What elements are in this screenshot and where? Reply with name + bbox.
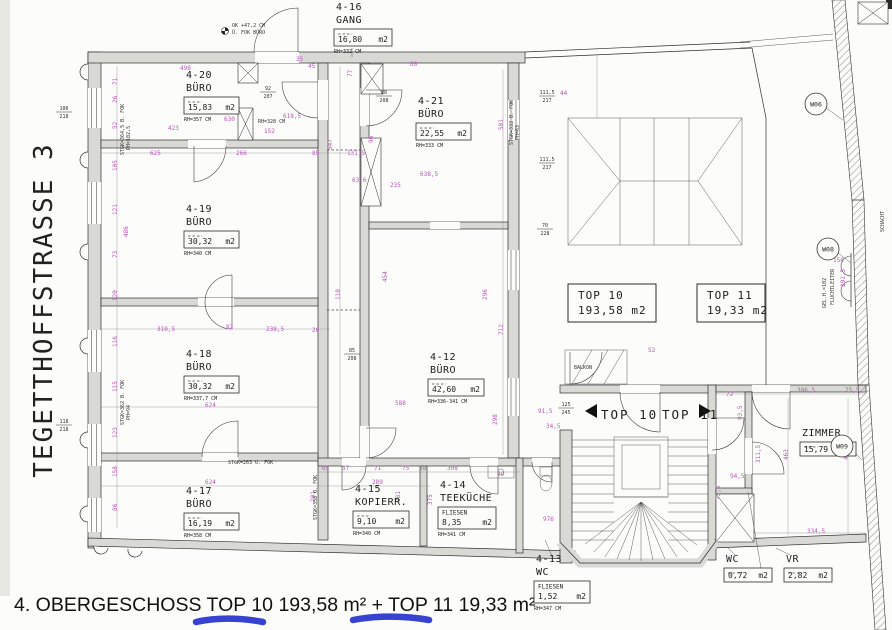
room-name: WC: [726, 554, 739, 565]
room-number: 4-17: [186, 486, 212, 497]
room-name: GANG: [336, 15, 362, 26]
annotation-note: FLUCHTLEITER: [830, 268, 836, 305]
dimension-label: 547: [327, 139, 334, 150]
dimension-label: 52: [112, 121, 119, 129]
room-height-note: RH=340 CM: [353, 531, 380, 537]
dimension-label: 96: [368, 135, 375, 143]
wall-tag: W06: [805, 93, 827, 115]
room-area-unit: m2: [482, 518, 492, 527]
dimension-label: 334,5: [807, 528, 825, 535]
dimension-label: 306,5: [797, 387, 815, 394]
annotation-note: STGK=263 U. FOK: [228, 460, 273, 466]
elevation-mark-icon: [222, 28, 229, 35]
room-area-unit: m2: [758, 571, 768, 580]
dimension-label: 152: [264, 128, 275, 135]
stair-label-top10: TOP 10: [601, 407, 658, 422]
dimension-label: 116: [112, 336, 119, 347]
wall-tag-text: W06: [810, 101, 822, 109]
room-height-note: RH=333 CM: [416, 143, 443, 149]
page-title: 4. OBERGESCHOSS TOP 10 193,58 m² + TOP 1…: [14, 594, 536, 616]
label-text: 70: [542, 223, 548, 229]
room-number: 4-19: [186, 204, 212, 215]
dimension-label: 630: [224, 116, 235, 123]
dimension-label: 712: [498, 324, 505, 335]
room-area-unit: m2: [225, 382, 235, 391]
room-area-unit: m2: [378, 35, 388, 44]
label-text: 208: [347, 356, 356, 362]
room-number: 4-12: [430, 352, 456, 363]
annotation-note: BALKON: [574, 365, 592, 371]
dimension-label: 82: [226, 324, 234, 331]
label-text: 208: [379, 98, 388, 104]
dimension-label: 486: [123, 226, 130, 237]
floor-plan-drawing: TOP 10 TOP 11 TEGETTHOFFSTRASSE 3 4. OBE…: [0, 0, 892, 630]
label-text: 217: [542, 165, 551, 171]
dimension-label: 235: [390, 182, 401, 189]
window-left-4: [88, 424, 101, 466]
dimension-label: 77: [347, 69, 354, 77]
label-text: 92: [265, 86, 271, 92]
street-label: TEGETTHOFFSTRASSE 3: [29, 142, 59, 477]
dimension-label: 73: [112, 250, 119, 258]
room-height-note: RH=341 CM: [438, 532, 465, 538]
dimension-label: 976: [543, 516, 554, 523]
annotation-note: OK +47,2 CM: [232, 23, 265, 29]
dimension-label: 34,5: [546, 423, 561, 430]
dimension-label: 624: [205, 479, 216, 486]
unit-area-box: TOP 1119,33 m2: [697, 284, 768, 322]
room-name: KOPIERR.: [355, 497, 407, 508]
dimension-label: 588: [395, 400, 406, 407]
label-text: 88: [381, 90, 387, 96]
room-name: TEEKÜCHE: [440, 491, 492, 504]
label-text: 125: [561, 402, 570, 408]
label-text: 218: [59, 427, 68, 433]
room-number: 4-18: [186, 349, 212, 360]
dimension-label: 85: [312, 150, 320, 157]
label-text: 218: [59, 114, 68, 120]
dimension-label: 311,5: [755, 445, 762, 463]
stair-label-top11: TOP 11: [662, 407, 719, 422]
room-area-unit: m2: [576, 592, 586, 601]
room-area-value: 16,19: [188, 519, 212, 528]
label-text: 207: [263, 94, 272, 100]
dimension-label: 65: [322, 465, 330, 472]
dimension-label: 131,5: [347, 150, 365, 157]
unit-box-area: 193,58 m2: [578, 304, 647, 317]
room-height-note: RH=358 CM: [184, 533, 211, 539]
dimension-label: 423: [168, 125, 179, 132]
dimension-label: 266: [236, 150, 247, 157]
room-area-value: 22,55: [420, 129, 444, 138]
dimension-label: 105: [112, 160, 119, 171]
annotation-note: PH=102,5: [126, 126, 132, 150]
wall-tag-text: W08: [822, 246, 834, 254]
dimension-label: 26: [112, 95, 119, 103]
room-name: BÜRO: [430, 363, 456, 376]
room-area-unit: m2: [457, 129, 467, 138]
label-text: 111,5: [539, 157, 554, 163]
dimension-label: 52: [648, 347, 656, 354]
dimension-label: 298: [492, 414, 499, 425]
unit-box-label: TOP 10: [578, 289, 624, 302]
room-area-value: 0,72: [728, 571, 747, 580]
room-number: 4-16: [336, 2, 362, 13]
dimension-label: 618,5: [283, 113, 301, 120]
annotation-note: STGK=358 O. FOK: [313, 475, 319, 520]
label-text: 228: [540, 231, 549, 237]
dimension-label: 60: [410, 61, 418, 68]
dimension-label: 296: [482, 289, 489, 300]
dimension-label: 625: [150, 150, 161, 157]
scanned-floor-plan-page: TOP 10 TOP 11 TEGETTHOFFSTRASSE 3 4. OBE…: [0, 0, 892, 630]
room-area-unit: m2: [818, 571, 828, 580]
room-name: WC: [536, 567, 549, 578]
label-text: 118: [59, 419, 68, 425]
dimension-label: 71: [112, 77, 119, 85]
room-area-unit: m2: [395, 517, 405, 526]
dimension-label: 123: [112, 427, 119, 438]
room-number: 4-21: [418, 96, 444, 107]
dimension-label: 581: [498, 119, 505, 130]
unit-area-box: TOP 10193,58 m2: [568, 284, 656, 322]
dimension-label: 91,5: [538, 408, 553, 415]
dimension-label: 63,6: [352, 177, 367, 184]
room-number: 4-15: [355, 484, 381, 495]
room-area-value: 1,52: [538, 592, 557, 601]
room-area-value: 15,79: [804, 445, 828, 454]
room-name: BÜRO: [186, 81, 212, 94]
room-area-value: 15,83: [188, 103, 212, 112]
room-area-unit: m2: [470, 385, 480, 394]
dimension-label: 72: [726, 391, 734, 398]
room-area-unit: m2: [225, 237, 235, 246]
window-left-2: [88, 182, 101, 224]
room-material: FLIESEN: [442, 510, 468, 517]
dimension-label: 94,5: [730, 473, 745, 480]
dimension-label: 624: [205, 402, 216, 409]
room-name: BÜRO: [418, 107, 444, 120]
annotation-note: GEL.H.=102: [822, 278, 828, 308]
dimension-label: 308: [447, 465, 458, 472]
dimension-label: 375: [427, 494, 434, 505]
dimension-label: 29: [497, 471, 505, 478]
room-area-value: 30,32: [188, 382, 212, 391]
label-text: 245: [561, 410, 570, 416]
annotation-note: PH=94: [126, 405, 132, 420]
label-text: 85: [349, 348, 355, 354]
unit-box-area: 19,33 m2: [707, 304, 768, 317]
scan-edge-shadow: [0, 0, 10, 596]
dimension-label: 75,5: [845, 387, 860, 394]
room-area-value: 8,35: [442, 518, 461, 527]
window-court-3: [508, 378, 519, 416]
dimension-label: 463: [783, 449, 790, 460]
dimension-label: 110: [335, 289, 342, 300]
dimension-label: 238,5: [266, 326, 284, 333]
blue-marker-underline-top10: [196, 619, 263, 622]
room-area-value: 16,80: [338, 35, 362, 44]
dimension-label: 120: [112, 290, 119, 301]
dimension-label: 71: [374, 465, 382, 472]
annotation-note: Ü. FOK BÜRO: [232, 29, 265, 36]
blue-marker-underline-top11: [353, 617, 429, 620]
room-name: VR: [786, 554, 800, 565]
dimension-label: 638,5: [420, 171, 438, 178]
annotation-note: RH=328 CM: [258, 119, 285, 125]
window-left-5: [88, 498, 101, 532]
dimension-label: 44: [560, 90, 568, 97]
room-area-unit: m2: [225, 103, 235, 112]
room-area-value: 42,60: [432, 385, 456, 394]
dimension-label: 45: [308, 63, 316, 70]
room-name: BÜRO: [186, 360, 212, 373]
unit-box-label: TOP 11: [707, 289, 753, 302]
room-name: BÜRO: [186, 497, 212, 510]
wall-tag: W08: [817, 238, 839, 260]
dimension-label: 86: [112, 503, 119, 511]
room-height-note: RH=337,7 CM: [184, 396, 217, 402]
room-height-note: RH=357 CM: [184, 117, 211, 123]
room-area-value: 2,82: [788, 571, 807, 580]
dimension-label: 310,5: [157, 326, 175, 333]
dimension-label: 93,5: [737, 405, 744, 420]
wall-tag-text: W09: [836, 443, 848, 451]
dimension-label: 158: [112, 466, 119, 477]
dimension-label: 115: [112, 381, 119, 392]
dimension-label: 57: [342, 465, 350, 472]
room-height-note: RH=340 CM: [184, 251, 211, 257]
room-area-unit: m2: [225, 519, 235, 528]
room-area-value: 9,10: [357, 517, 376, 526]
annotation-note: PH=63: [515, 125, 521, 140]
room-height-note: RH=347 CM: [534, 606, 561, 612]
wall-tag: W09: [831, 435, 853, 457]
room-number: 4-20: [186, 70, 212, 81]
room-height-note: RH=336-341 CM: [428, 399, 467, 405]
window-left-3: [88, 330, 101, 372]
window-court-2: [508, 250, 519, 290]
dimension-label: 26: [312, 327, 320, 334]
label-text: 111,5: [539, 90, 554, 96]
dimension-label: 38: [419, 465, 427, 472]
dimension-label: 73,5: [715, 485, 722, 500]
room-height-note: RH=332 CM: [334, 49, 361, 55]
room-number: 4-13: [536, 554, 562, 565]
room-number: 4-14: [440, 480, 466, 491]
dimension-label: 454: [382, 271, 389, 282]
dimension-label: 35: [296, 56, 304, 63]
annotation-note: SCHACHT: [880, 211, 886, 232]
window-left-1: [88, 88, 101, 128]
label-text: 106: [59, 106, 68, 112]
label-text: 217: [542, 98, 551, 104]
dimension-label: 75: [402, 465, 410, 472]
room-area-value: 30,32: [188, 237, 212, 246]
dimension-label: 121: [112, 204, 119, 215]
dimension-label: 291,5: [840, 269, 847, 287]
room-name: BÜRO: [186, 215, 212, 228]
room-material: FLIESEN: [538, 584, 564, 591]
